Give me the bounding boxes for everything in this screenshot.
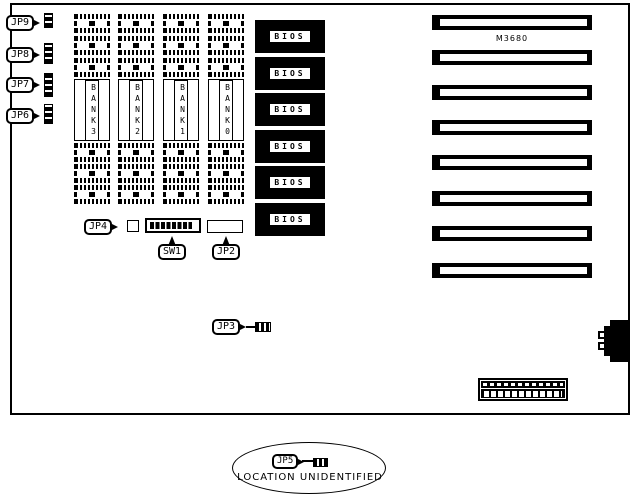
footnote-ellipse [232, 442, 386, 494]
jumper-block-jp9 [44, 13, 53, 28]
memory-chip [74, 185, 110, 204]
dip-switch-sw1 [145, 218, 201, 233]
bios-chip: BIOS [255, 20, 325, 53]
bios-label: BIOS [270, 104, 309, 115]
motherboard-diagram: JP9 JP8 JP7 JP6 BANK3 BANK2 BANK1 BANK0 … [0, 0, 636, 500]
bank-label-bank1: BANK1 [174, 80, 188, 141]
bios-label: BIOS [270, 68, 309, 79]
bios-label: BIOS [270, 141, 309, 152]
memory-chip [118, 185, 154, 204]
pin-header-jp2 [207, 220, 243, 233]
memory-chip [74, 36, 110, 55]
model-label: M3680 [432, 34, 592, 43]
memory-chip [118, 164, 154, 183]
expansion-slot [432, 226, 592, 241]
jumper-callout-jp5: JP5 [272, 454, 298, 469]
memory-chip [118, 36, 154, 55]
jumper-callout-jp2: JP2 [212, 244, 240, 260]
memory-chip [208, 143, 244, 162]
bios-chip: BIOS [255, 57, 325, 90]
jumper-callout-jp8: JP8 [6, 47, 34, 63]
keyboard-connector-pin [598, 331, 606, 339]
bios-label: BIOS [270, 177, 309, 188]
memory-chip [208, 58, 244, 77]
memory-chip [74, 164, 110, 183]
jumper-block-jp6 [44, 104, 53, 124]
expansion-slot [432, 191, 592, 206]
memory-chip [118, 58, 154, 77]
memory-chip [163, 58, 199, 77]
jumper-block-jp4 [127, 220, 139, 232]
jumper-block-jp7 [44, 73, 53, 97]
memory-chip [118, 14, 154, 33]
keyboard-connector [610, 320, 628, 362]
expansion-slot [432, 50, 592, 65]
keyboard-connector-pin [598, 342, 606, 350]
expansion-slot [432, 85, 592, 100]
memory-chip [118, 143, 154, 162]
bios-label: BIOS [270, 214, 309, 225]
memory-chip [74, 143, 110, 162]
bios-chip: BIOS [255, 130, 325, 163]
memory-chip [74, 58, 110, 77]
expansion-slot [432, 263, 592, 278]
switch-callout-sw1: SW1 [158, 244, 186, 260]
bank-label-bank0: BANK0 [219, 80, 233, 141]
memory-chip [163, 36, 199, 55]
footnote-text: LOCATION UNIDENTIFIED [222, 472, 398, 483]
memory-chip [163, 14, 199, 33]
bios-chip: BIOS [255, 166, 325, 199]
expansion-slot [432, 155, 592, 170]
memory-chip [163, 164, 199, 183]
bank-label-bank3: BANK3 [85, 80, 99, 141]
memory-chip [208, 36, 244, 55]
jumper-block-jp5 [313, 458, 328, 467]
memory-chip [74, 14, 110, 33]
power-pin-header [478, 378, 568, 401]
jumper-block-jp3 [255, 322, 271, 332]
memory-chip [163, 143, 199, 162]
memory-chip [208, 164, 244, 183]
jumper-callout-jp4: JP4 [84, 219, 112, 235]
expansion-slot [432, 120, 592, 135]
jumper-callout-jp3: JP3 [212, 319, 240, 335]
memory-chip [163, 185, 199, 204]
jumper-callout-jp7: JP7 [6, 77, 34, 93]
memory-chip [208, 185, 244, 204]
memory-chip [208, 14, 244, 33]
jumper-block-jp8 [44, 43, 53, 64]
bios-label: BIOS [270, 31, 309, 42]
bios-chip: BIOS [255, 93, 325, 126]
jumper-callout-jp6: JP6 [6, 108, 34, 124]
expansion-slot [432, 15, 592, 30]
jumper-callout-jp9: JP9 [6, 15, 34, 31]
bank-label-bank2: BANK2 [129, 80, 143, 141]
bios-chip: BIOS [255, 203, 325, 236]
